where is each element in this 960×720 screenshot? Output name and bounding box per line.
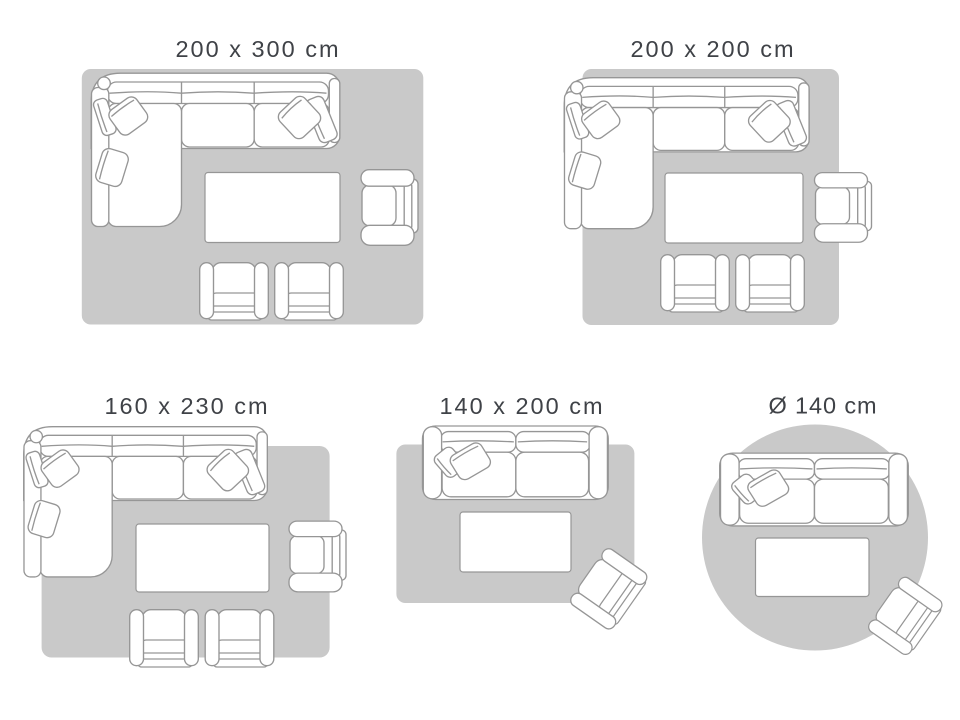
- svg-text:200 x 300 cm: 200 x 300 cm: [175, 36, 340, 62]
- svg-text:140 x 200 cm: 140 x 200 cm: [439, 393, 604, 419]
- svg-text:Ø 140 cm: Ø 140 cm: [768, 393, 877, 419]
- svg-text:200 x 200 cm: 200 x 200 cm: [630, 36, 795, 62]
- svg-text:160 x 230 cm: 160 x 230 cm: [104, 393, 269, 419]
